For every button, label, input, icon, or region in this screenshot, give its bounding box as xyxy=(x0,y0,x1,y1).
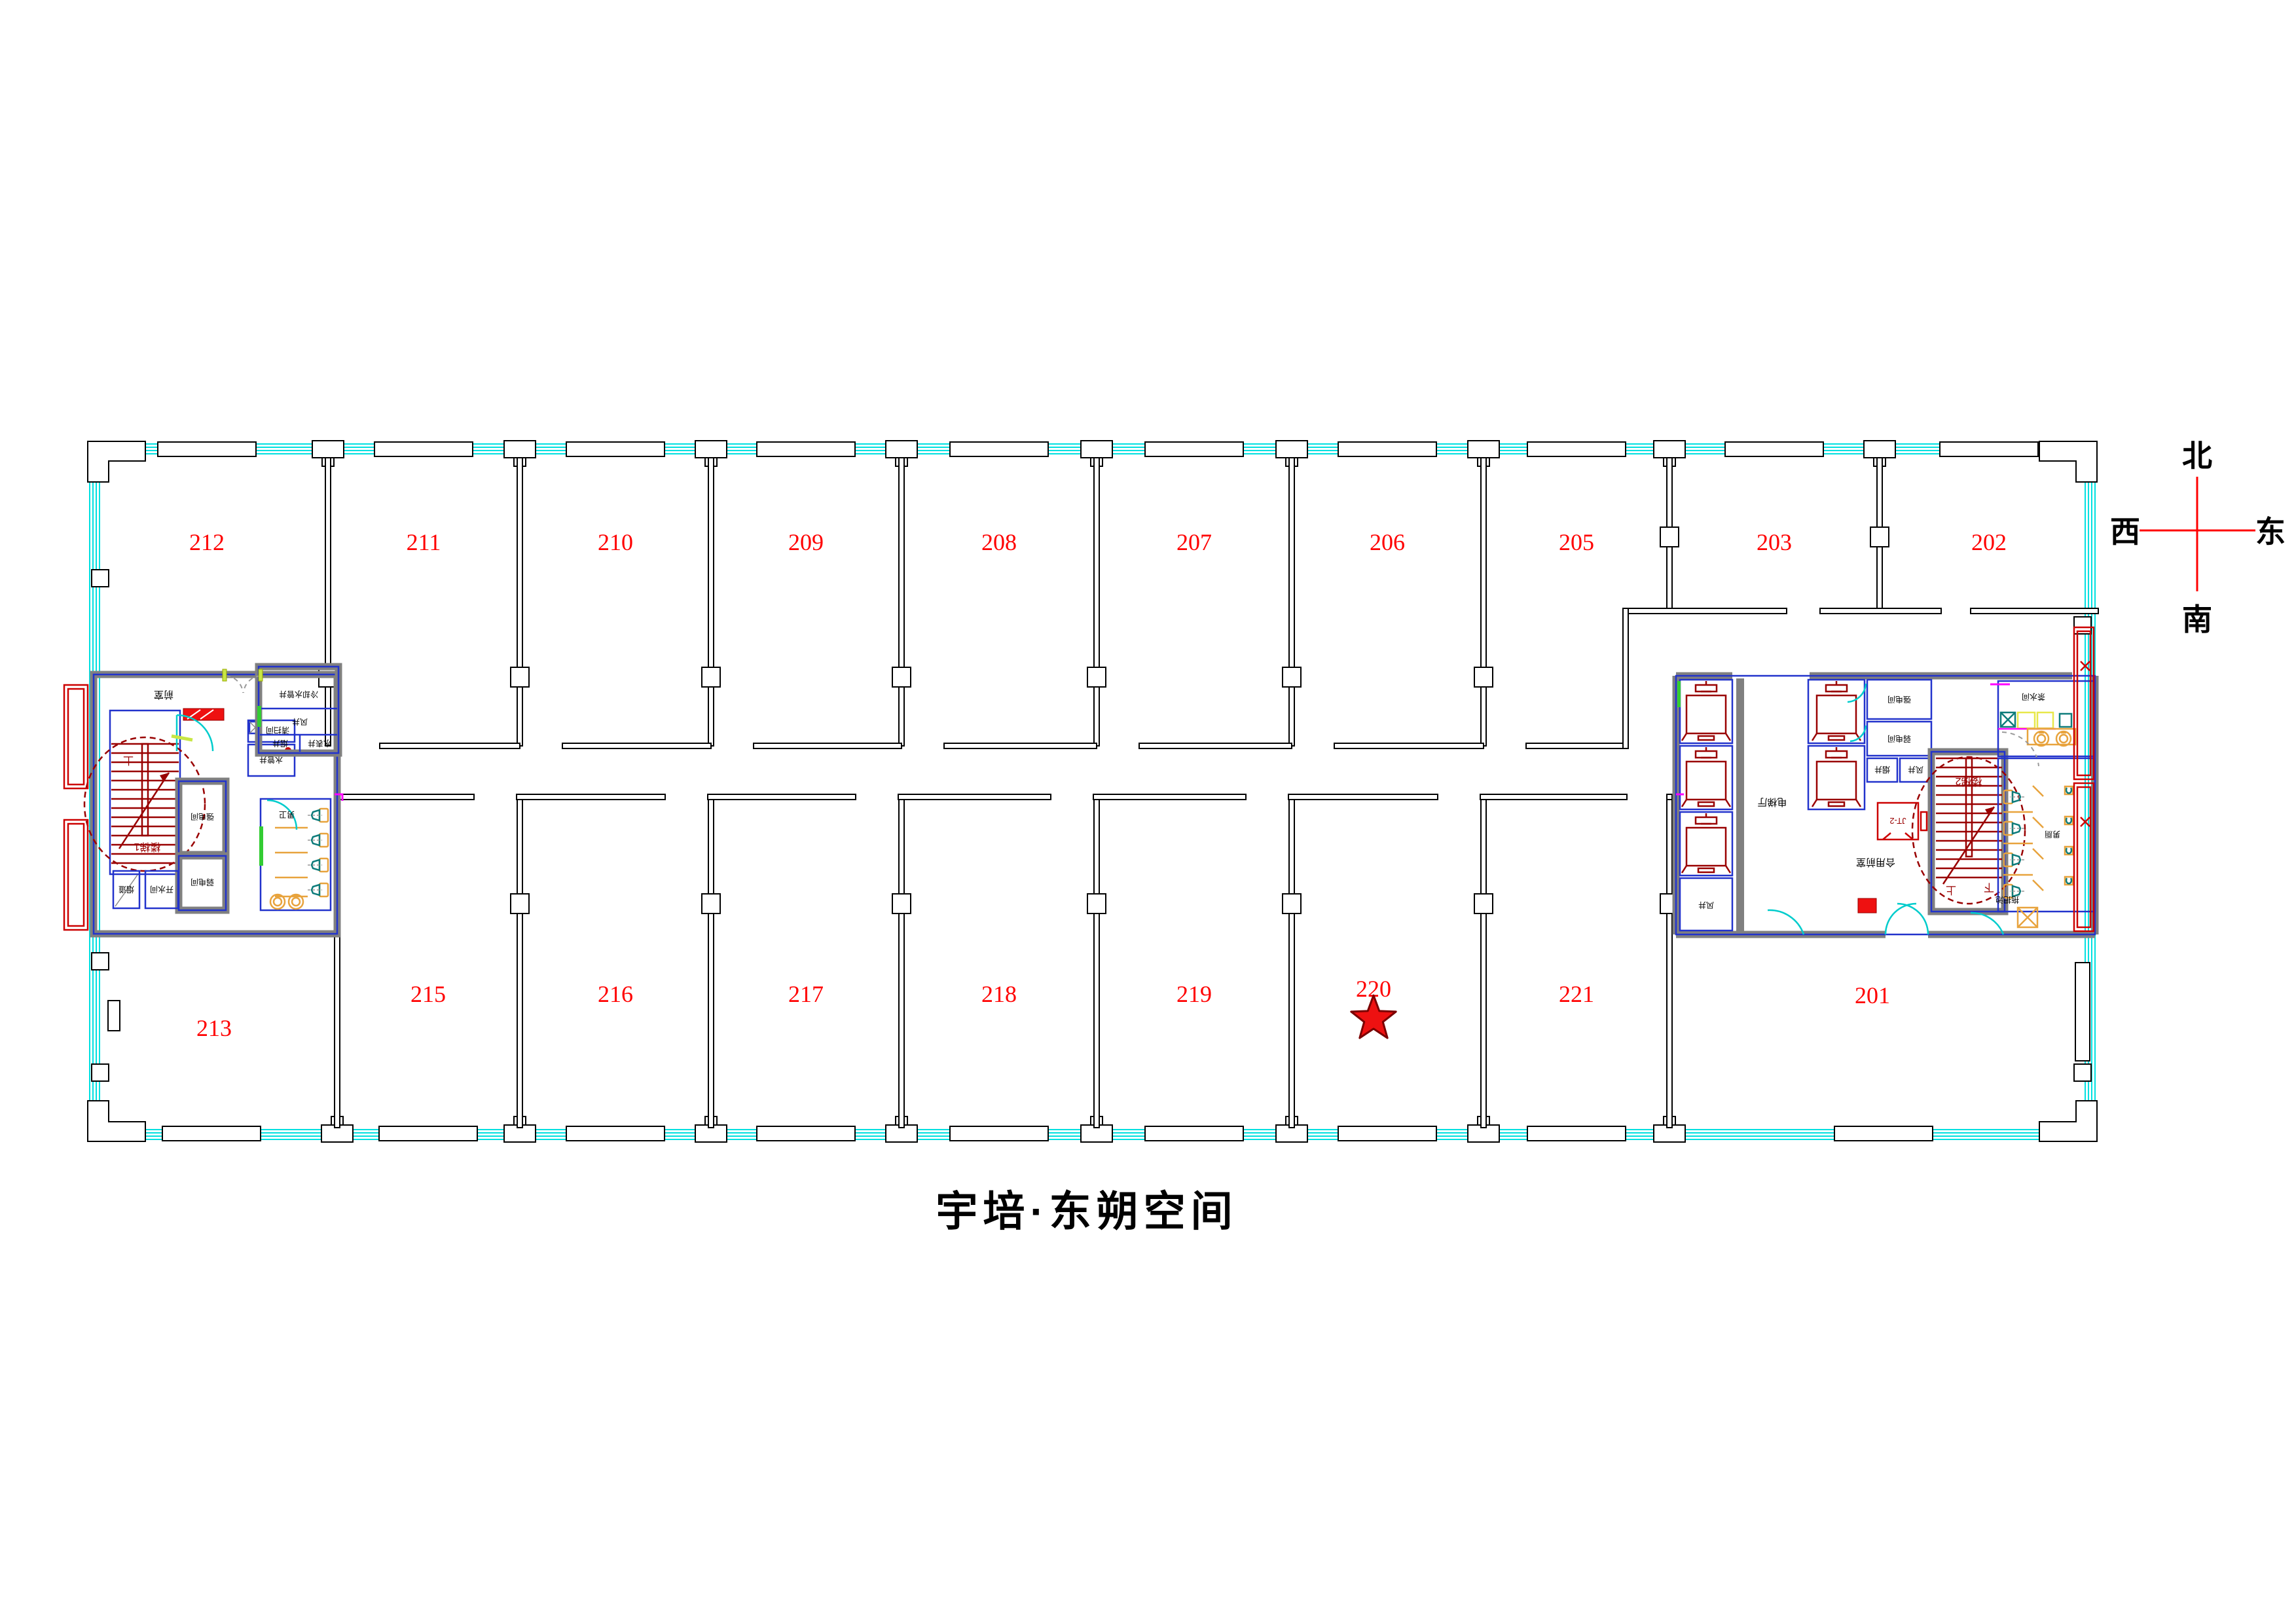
south-small-rooms: 烟道 开水间 xyxy=(113,871,178,908)
room-label-221: 221 xyxy=(1559,981,1594,1007)
fire-elevator: JT-2 xyxy=(1878,803,1927,840)
label-air-shaft: 风井 xyxy=(292,717,308,726)
label-stair2-down: 下 xyxy=(1984,881,1994,893)
tea-room: 茶水间 xyxy=(1998,681,2095,766)
compass-north: 北 xyxy=(2182,439,2212,473)
floor-plan-canvas: 前室 楼梯1 上 清扫间 水管井 xyxy=(0,0,2296,1624)
room-label-217: 217 xyxy=(788,981,824,1007)
compass-south: 南 xyxy=(2182,602,2212,637)
room-label-211: 211 xyxy=(407,529,441,555)
stair-1: 楼梯1 上 xyxy=(84,710,205,874)
label-weak-electric: 弱电间 xyxy=(191,877,214,887)
room-label-205: 205 xyxy=(1559,529,1594,555)
label-mop-pool: 拖把池 xyxy=(1995,895,2019,904)
label-stair2: 楼梯2 xyxy=(1955,775,1982,787)
label-fire-lift-code: JT-2 xyxy=(1889,816,1906,826)
green-wall-mark xyxy=(257,706,261,727)
shared-anteroom: 合用前室 xyxy=(1768,857,1928,934)
room-label-209: 209 xyxy=(788,529,824,555)
elevator-bank-west: 风井 xyxy=(1677,678,1744,931)
room-label-203: 203 xyxy=(1757,529,1792,555)
label-stair1-up: 上 xyxy=(123,754,134,766)
core-wall xyxy=(1736,678,1744,931)
green-wall-mark xyxy=(1677,681,1681,707)
corridor-south-wall xyxy=(338,794,1672,800)
bottom-room-partitions xyxy=(335,800,1679,1128)
compass-west: 西 xyxy=(2110,515,2140,549)
room-label-215: 215 xyxy=(410,981,446,1007)
label-water-meter: 水表井 xyxy=(308,739,331,748)
room-label-208: 208 xyxy=(981,529,1017,555)
electric-shafts: 强电间 弱电间 xyxy=(179,781,226,910)
left-mens-wc: 男卫 xyxy=(259,799,331,910)
room-label-206: 206 xyxy=(1370,529,1405,555)
room-label-212: 212 xyxy=(189,529,225,555)
label-mens-wc: 男卫 xyxy=(279,810,295,819)
label-cooling-shaft: 冷却水管井 xyxy=(279,690,318,699)
label-r-strong-electric: 强电间 xyxy=(1887,695,1911,704)
left-core: 前室 楼梯1 上 清扫间 水管井 xyxy=(64,667,338,934)
east-red-risers xyxy=(2074,627,2094,931)
room-label-202: 202 xyxy=(1971,529,2007,555)
label-stair1: 楼梯1 xyxy=(134,841,160,853)
label-r-smoke-shaft: 烟井 xyxy=(1874,765,1890,774)
label-anteroom: 前室 xyxy=(154,689,173,700)
room-label-219: 219 xyxy=(1176,981,1212,1007)
top-room-partitions xyxy=(319,458,1889,746)
room-label-213: 213 xyxy=(196,1015,232,1041)
west-red-risers xyxy=(64,685,88,930)
compass: 北 南 西 东 xyxy=(2110,439,2286,637)
room-label-210: 210 xyxy=(598,529,633,555)
label-shared-anteroom: 合用前室 xyxy=(1856,857,1895,868)
west-bay-projection xyxy=(108,1001,120,1031)
label-r-air-shaft: 风井 xyxy=(1908,765,1923,774)
label-bank-air-shaft: 风井 xyxy=(1698,900,1714,910)
page-title: 宇培·东朔空间 xyxy=(936,1188,1237,1235)
corner-columns xyxy=(88,441,2097,1141)
label-strong-electric: 强电间 xyxy=(191,812,214,821)
right-core: 风井 电梯厅 强电间 弱电间 烟井 风井 xyxy=(1676,627,2095,934)
side-wall-details xyxy=(92,570,2091,1081)
room-label-218: 218 xyxy=(981,981,1017,1007)
perimeter-glazing xyxy=(90,444,2095,1139)
fire-hydrant xyxy=(183,709,224,720)
room-label-207: 207 xyxy=(1176,529,1212,555)
label-cleaning-room: 清扫间 xyxy=(266,726,289,735)
label-smoke-duct: 烟道 xyxy=(118,885,134,894)
label-r-weak-electric: 弱电间 xyxy=(1887,734,1911,743)
room-label-201: 201 xyxy=(1855,982,1890,1008)
right-electric-rooms: 强电间 弱电间 烟井 风井 xyxy=(1848,680,1931,782)
compass-east: 东 xyxy=(2255,515,2286,549)
room-label-216: 216 xyxy=(598,981,633,1007)
label-mens-toilet: 男厕 xyxy=(2045,830,2060,839)
label-lift-lobby: 电梯厅 xyxy=(1757,796,1787,807)
green-wall-mark xyxy=(259,826,263,866)
fire-hydrant xyxy=(1858,898,1876,913)
label-hot-water: 开水间 xyxy=(150,885,173,894)
label-smoke-shaft: 烟井 xyxy=(272,739,288,748)
label-stair2-up: 上 xyxy=(1946,884,1956,896)
label-tea-room: 茶水间 xyxy=(2022,692,2045,702)
